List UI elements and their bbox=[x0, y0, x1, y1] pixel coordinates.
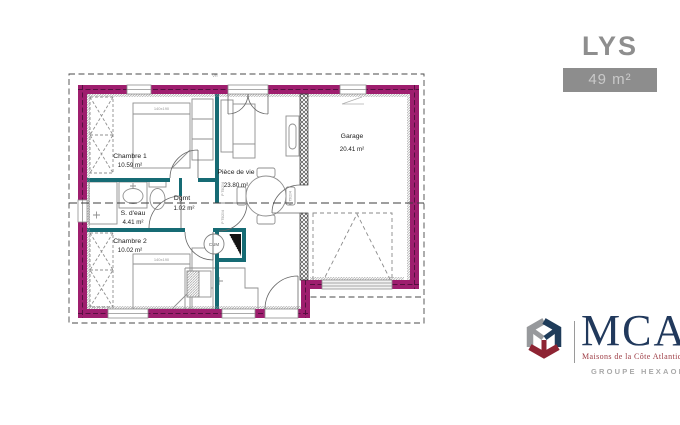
sink-icon bbox=[119, 182, 147, 208]
dgmt-area: 1.02 m² bbox=[174, 205, 195, 212]
mca-cube-icon bbox=[521, 314, 567, 364]
group-hexaom-label: GROUPE HEXAOM bbox=[591, 367, 680, 376]
floor-plan: CUM bbox=[0, 0, 680, 425]
page: LYS 49 m² bbox=[0, 0, 680, 425]
chambre1-area: 10.59 m² bbox=[118, 162, 142, 169]
door-spec-label: P 75/204 bbox=[221, 210, 225, 224]
fridge-icon bbox=[286, 116, 299, 156]
nightstand-icon bbox=[192, 99, 213, 160]
garage-door-icon bbox=[322, 280, 392, 289]
garage-separation-wall bbox=[300, 94, 308, 280]
garage-window-swing bbox=[342, 97, 364, 104]
logo-divider bbox=[574, 321, 575, 363]
water-heater-icon: CUM bbox=[204, 234, 224, 254]
water-heater-label: CUM bbox=[209, 242, 219, 247]
wardrobe-icon bbox=[90, 97, 113, 173]
mca-logo-text: MCA bbox=[581, 309, 680, 353]
garage-parking-outline bbox=[313, 213, 392, 283]
entrance-door-opening bbox=[265, 309, 298, 318]
piece-de-vie-label: Pièce de vie bbox=[217, 169, 254, 176]
technical-duct-icon bbox=[229, 234, 241, 256]
dining-table-icon bbox=[237, 168, 295, 224]
roller-shutter-label: VR bbox=[212, 73, 218, 78]
bed-size-label: 140x190 bbox=[154, 106, 170, 111]
piece-de-vie-area: 23.80 m² bbox=[224, 182, 248, 189]
chambre2-area: 10.02 m² bbox=[118, 247, 142, 254]
storage-unit-icon bbox=[221, 100, 255, 158]
chambre1-label: Chambre 1 bbox=[113, 153, 147, 160]
bed-icon bbox=[133, 254, 190, 309]
garage-area: 20.41 m² bbox=[340, 146, 364, 153]
wardrobe-icon bbox=[90, 233, 113, 307]
sdeau-label: S. d'eau bbox=[121, 210, 146, 217]
garage-label: Garage bbox=[341, 133, 364, 140]
chambre2-label: Chambre 2 bbox=[113, 238, 147, 245]
door-spec-label: P 75/204 bbox=[221, 182, 225, 196]
window bbox=[127, 85, 151, 94]
sdeau-area: 4.41 m² bbox=[123, 219, 144, 226]
french-door bbox=[228, 85, 268, 94]
door-arc bbox=[265, 276, 298, 309]
window bbox=[340, 85, 366, 94]
mca-tagline: Maisons de la Côte Atlantique bbox=[582, 352, 680, 361]
dgmt-label: Dgmt bbox=[174, 195, 190, 202]
window bbox=[222, 309, 255, 318]
toilet-icon bbox=[149, 180, 166, 210]
bed-size-label: 140x190 bbox=[154, 257, 170, 262]
door-spec-label: P 75/204 bbox=[289, 191, 293, 205]
window bbox=[108, 309, 148, 318]
